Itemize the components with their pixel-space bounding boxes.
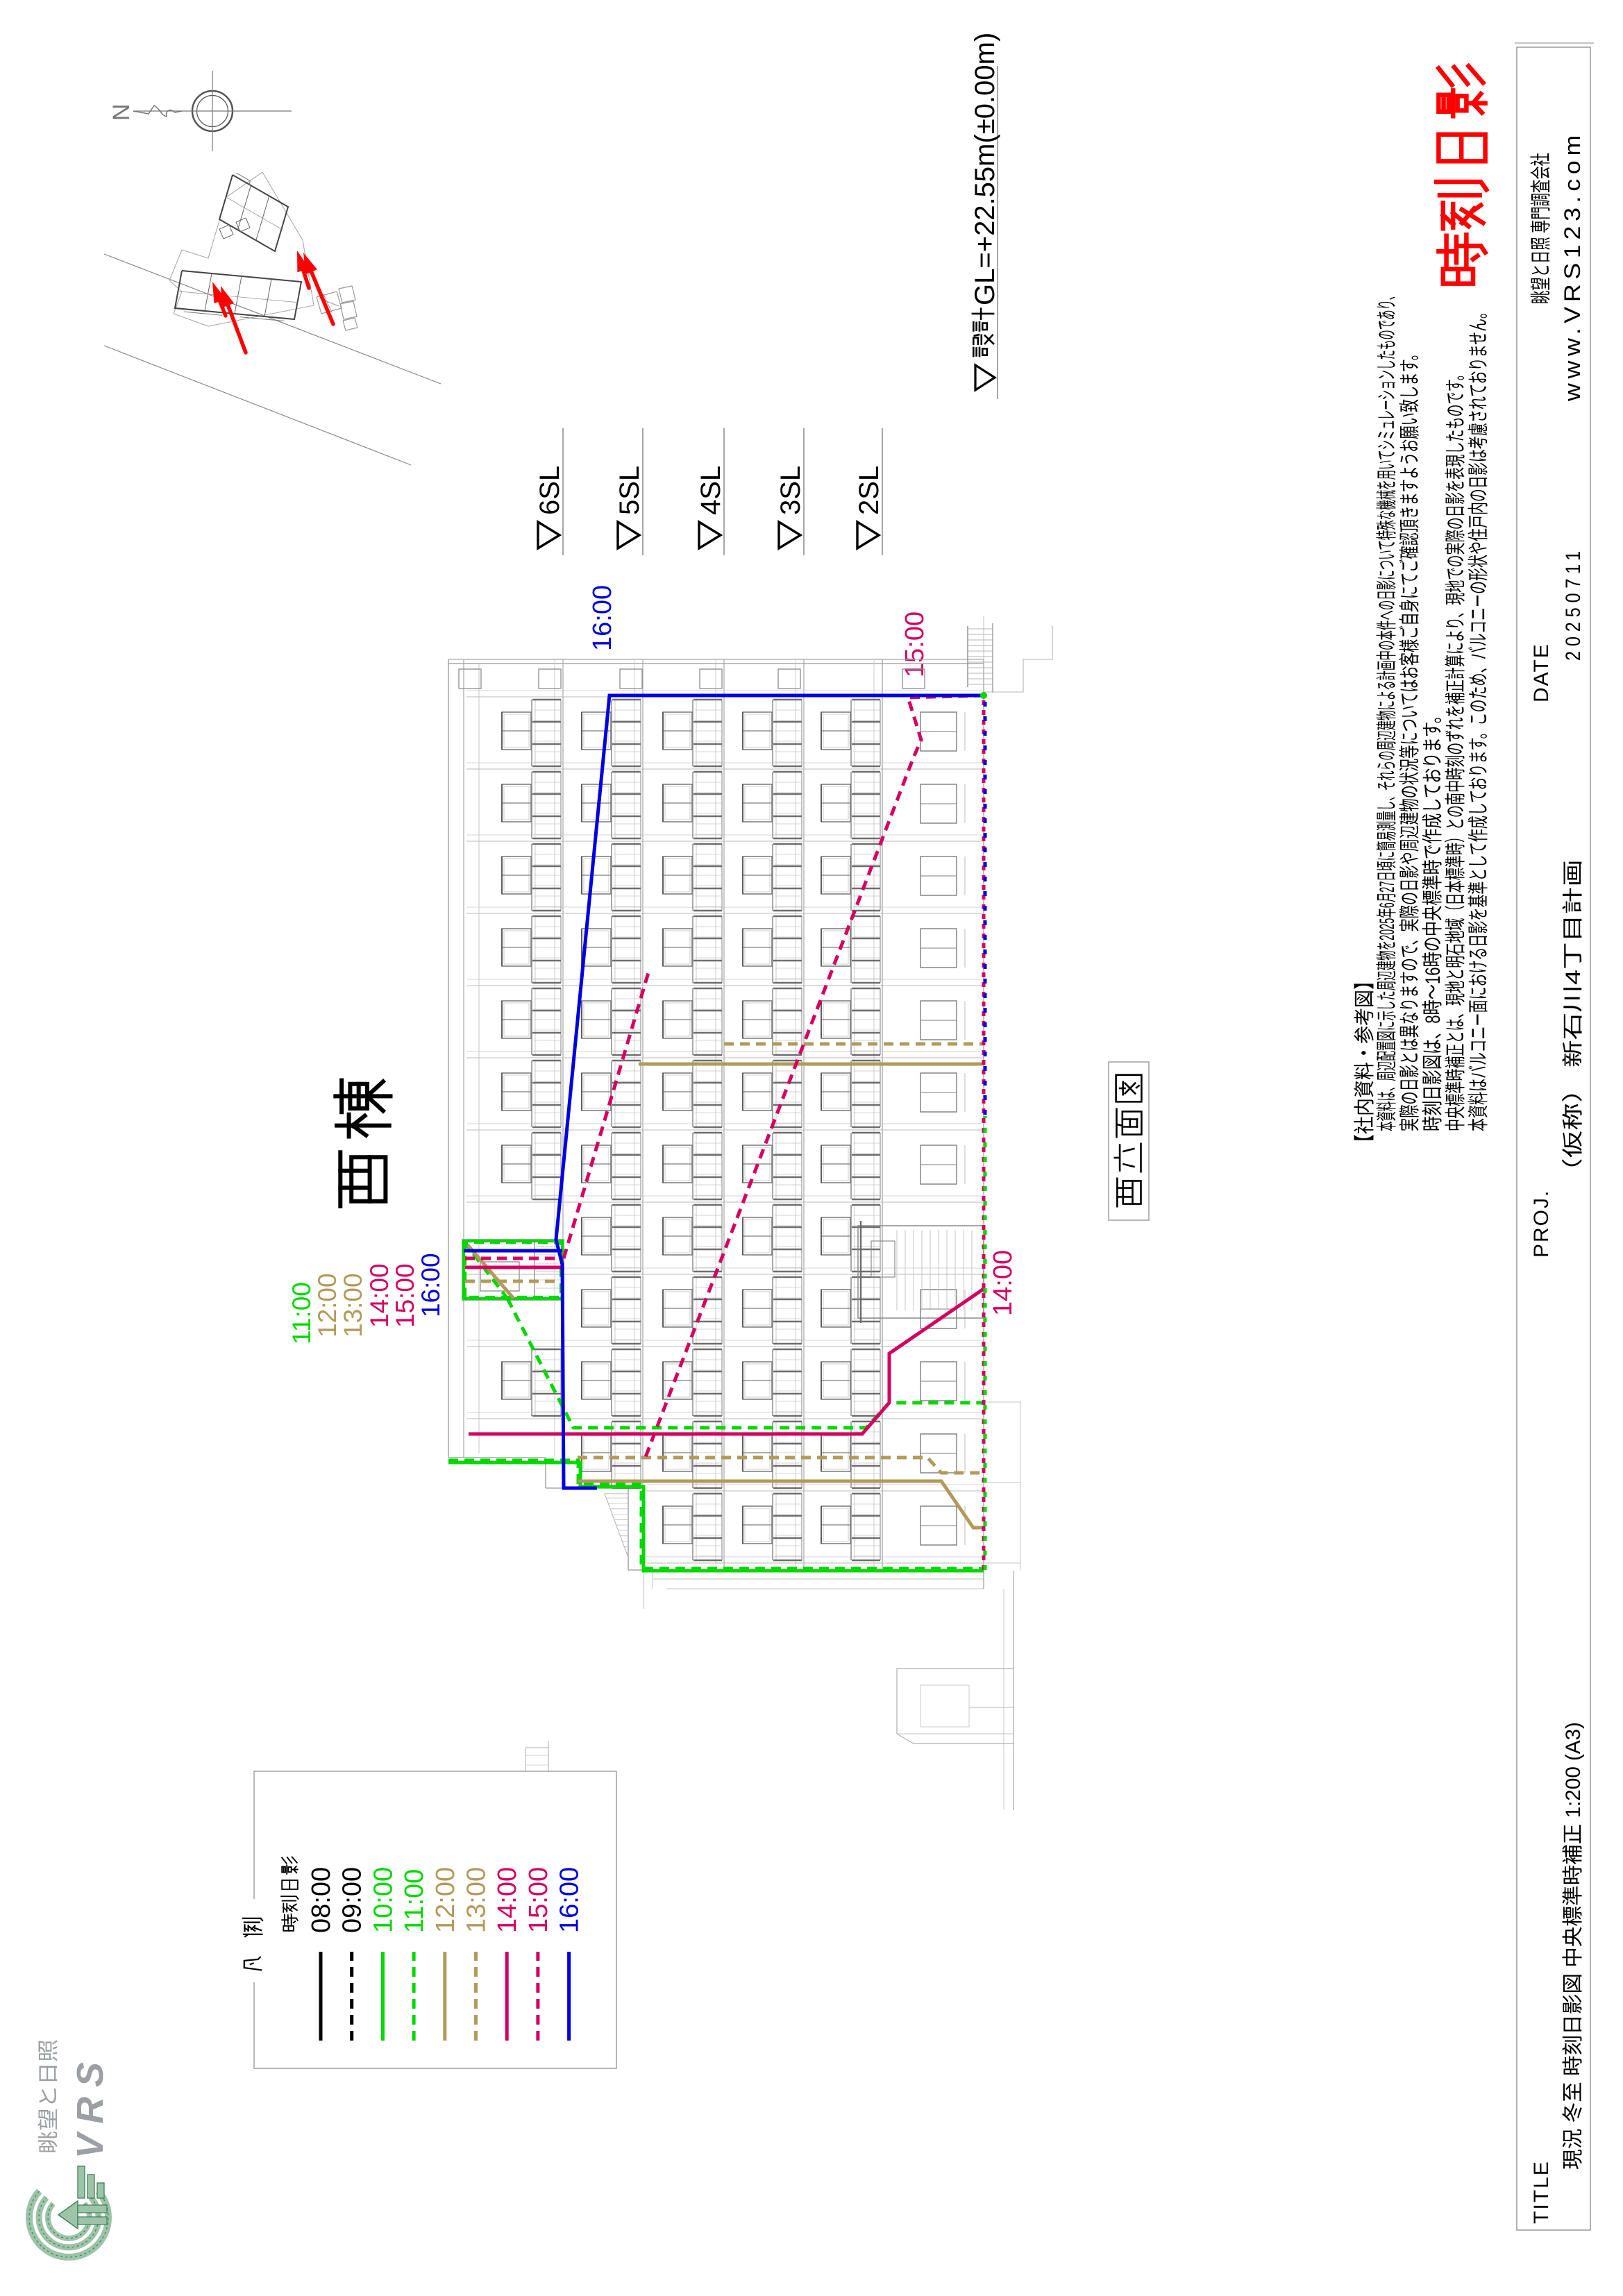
svg-text:4SL: 4SL [696, 466, 726, 515]
svg-text:眺望と日照: 眺望と日照 [37, 2039, 60, 2154]
svg-text:VRS: VRS [69, 2052, 111, 2159]
svg-text:www.VRS123.com: www.VRS123.com [1560, 130, 1585, 402]
svg-text:10:00: 10:00 [369, 1867, 398, 1933]
svg-text:14:00: 14:00 [365, 1263, 394, 1328]
svg-text:15:00: 15:00 [391, 1263, 419, 1328]
svg-text:16:00: 16:00 [555, 1867, 585, 1933]
svg-text:11:00: 11:00 [287, 1282, 316, 1344]
svg-text:13:00: 13:00 [462, 1867, 491, 1933]
svg-text:DATE: DATE [1530, 643, 1553, 702]
svg-text:16:00: 16:00 [417, 1253, 445, 1317]
svg-text:N: N [108, 103, 135, 121]
svg-text:20250711: 20250711 [1562, 546, 1585, 661]
svg-text:時刻日影図は、8時～16時の中央標準時で作成しております。: 時刻日影図は、8時～16時の中央標準時で作成しております。 [1422, 708, 1445, 1131]
svg-text:09:00: 09:00 [338, 1867, 367, 1933]
svg-text:GL=+22.55m(±0.00m): GL=+22.55m(±0.00m) [970, 33, 1000, 305]
svg-text:【社内資料・参考図】: 【社内資料・参考図】 [1354, 972, 1377, 1152]
svg-text:眺望と日照 専門調査会社: 眺望と日照 専門調査会社 [1530, 153, 1553, 304]
svg-text:15:00: 15:00 [900, 611, 930, 677]
svg-text:（仮称） 新石川4丁目計画: （仮称） 新石川4丁目計画 [1562, 859, 1585, 1185]
svg-text:13:00: 13:00 [339, 1273, 367, 1337]
svg-text:15:00: 15:00 [524, 1867, 553, 1933]
svg-text:現況 冬至 時刻日影図 中央標準時補正 1:200 (A3): 現況 冬至 時刻日影図 中央標準時補正 1:200 (A3) [1562, 1722, 1585, 2170]
svg-text:14:00: 14:00 [493, 1867, 522, 1933]
svg-text:3SL: 3SL [775, 466, 806, 515]
svg-text:08:00: 08:00 [307, 1867, 336, 1933]
svg-text:16:00: 16:00 [588, 585, 617, 651]
svg-text:6SL: 6SL [535, 466, 565, 515]
svg-text:12:00: 12:00 [431, 1867, 460, 1933]
svg-text:12:00: 12:00 [313, 1273, 342, 1337]
svg-text:2SL: 2SL [854, 466, 884, 515]
svg-text:5SL: 5SL [614, 466, 645, 515]
svg-text:本資料はバルコニー面における日影を基準として作成しております: 本資料はバルコニー面における日影を基準として作成しております。このため、バルコニ… [1468, 305, 1490, 1131]
svg-text:TITLE: TITLE [1530, 2160, 1553, 2224]
svg-text:11:00: 11:00 [400, 1869, 429, 1933]
svg-text:本資料は、周辺配置図に示した周辺建物を2025年6月27日頃: 本資料は、周辺配置図に示した周辺建物を2025年6月27日頃に簡易測量し、それら… [1376, 290, 1399, 1131]
svg-text:中央標準時補正とは、現地と明石地域（日本標準時）との南中時刻: 中央標準時補正とは、現地と明石地域（日本標準時）との南中時刻のずれを補正計算によ… [1445, 368, 1468, 1131]
svg-text:14:00: 14:00 [989, 1250, 1018, 1316]
svg-text:PROJ.: PROJ. [1530, 1190, 1553, 1258]
svg-text:実際の日影とは異なりますので、実際の日影や周辺建物の状況等に: 実際の日影とは異なりますので、実際の日影や周辺建物の状況等についてはお客様ご自身… [1399, 347, 1422, 1131]
